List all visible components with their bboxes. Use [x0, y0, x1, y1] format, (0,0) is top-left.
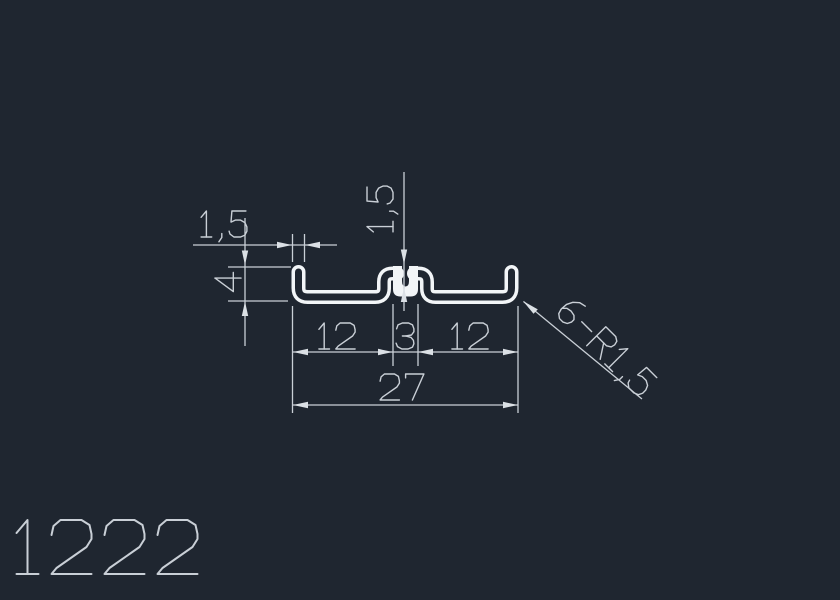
leader-line-radius [524, 302, 643, 400]
arrow-left-icon [418, 349, 433, 355]
dim-text-right-span [452, 323, 488, 349]
arrow-down-icon [242, 251, 248, 266]
dim-text-radius-note [552, 296, 657, 401]
dim-text-lip-thickness [201, 211, 247, 242]
arrow-right-icon [503, 349, 518, 355]
arrow-down-icon [401, 250, 407, 265]
arrow-right-icon [277, 242, 292, 248]
dim-text-lip-height [215, 272, 241, 291]
arrow-left-icon [305, 242, 320, 248]
dim-text-total-width [380, 374, 424, 400]
arrow-right-icon [378, 349, 393, 355]
profile-center-slot [393, 266, 418, 297]
arrow-left-icon [293, 402, 308, 408]
arrow-right-icon [503, 402, 518, 408]
cad-viewport[interactable] [0, 0, 840, 600]
dim-text-left-span [319, 323, 355, 349]
arrow-up-icon [242, 302, 248, 317]
dimension-lines [193, 172, 642, 413]
cad-drawing-canvas[interactable] [0, 0, 840, 600]
arrow-left-icon [293, 349, 308, 355]
part-number-text [17, 520, 198, 574]
dim-text-slot-top-width [367, 186, 398, 232]
dim-text-slot-width [396, 323, 414, 349]
